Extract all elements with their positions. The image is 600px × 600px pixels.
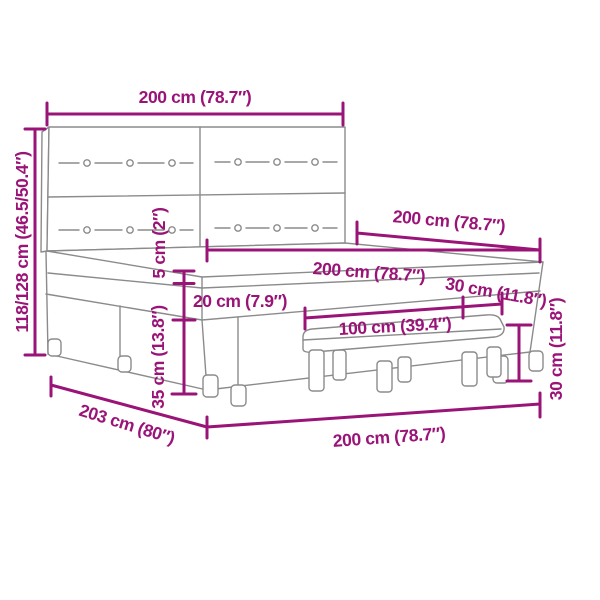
dim-bed-width-bottom-label: 200 cm (78.7″) <box>332 423 446 451</box>
bed-drawing <box>41 127 543 406</box>
dim-bench-height-label: 30 cm (11.8″) <box>546 298 566 400</box>
bench-leg-back-mid <box>398 357 411 382</box>
dim-height-range-label: 118/128 cm (46.5/50.4″) <box>12 151 32 332</box>
bed-left-edge <box>46 252 48 354</box>
dim-thickness-stack-line <box>172 271 196 394</box>
dim-base-height-label: 35 cm (13.8″) <box>148 305 168 408</box>
dim-headboard-width-label: 200 cm (78.7″) <box>139 87 252 107</box>
bench-leg-back-right <box>487 347 501 377</box>
headboard-front-panel <box>47 127 345 251</box>
dim-topper-thickness-label: 5 cm (2″) <box>149 208 169 279</box>
bench-leg-front-left <box>309 350 324 391</box>
bench-leg-front-right <box>462 352 477 386</box>
dim-mattress-thickness-label: 20 cm (7.9″) <box>193 291 287 311</box>
bench-leg-back-left <box>333 350 346 380</box>
dim-bed-length-label: 200 cm (78.7″) <box>392 206 506 236</box>
bench-leg-front-mid <box>377 361 392 392</box>
bed-dimensions-diagram: 200 cm (78.7″) 118/128 cm (46.5/50.4″) 2… <box>0 0 600 600</box>
